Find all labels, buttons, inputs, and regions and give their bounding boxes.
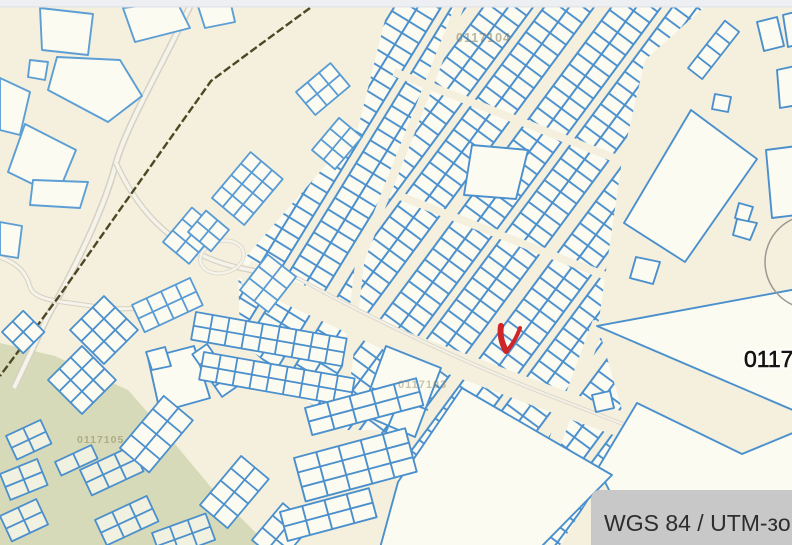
svg-text:0117: 0117 [744, 346, 792, 372]
svg-text:WGS 84 / UTM-зо: WGS 84 / UTM-зо [604, 510, 791, 536]
svg-text:0117104: 0117104 [456, 31, 511, 45]
svg-text:0117105: 0117105 [77, 434, 124, 446]
svg-text:0117103: 0117103 [398, 379, 447, 391]
